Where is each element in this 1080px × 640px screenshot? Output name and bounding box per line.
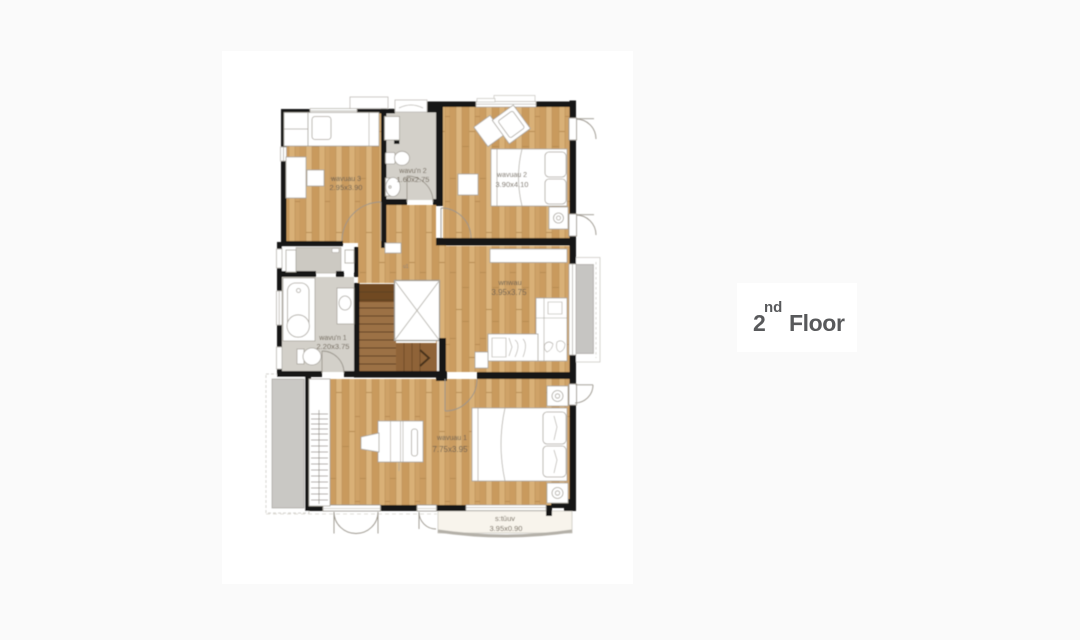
svg-text:wnwau: wnwau [497, 278, 521, 287]
svg-text:u1: u1 [403, 264, 409, 270]
svg-text:3.95x0.90: 3.95x0.90 [490, 524, 523, 533]
svg-text:Floor: Floor [789, 310, 845, 336]
svg-text:nd: nd [764, 299, 782, 316]
svg-text:2.20x3.75: 2.20x3.75 [317, 342, 350, 351]
svg-text:1.60x2.75: 1.60x2.75 [397, 175, 430, 184]
svg-text:s:tūuv: s:tūuv [495, 514, 515, 523]
svg-text:wavu'n 2: wavu'n 2 [398, 168, 427, 175]
svg-text:wavuau 2: wavuau 2 [496, 172, 527, 179]
svg-text:7.75x3.95: 7.75x3.95 [432, 445, 468, 454]
svg-text:3.90x4.10: 3.90x4.10 [496, 180, 529, 189]
svg-text:3.95x3.75: 3.95x3.75 [491, 288, 527, 297]
svg-text:2.95x3.90: 2.95x3.90 [330, 183, 363, 192]
svg-text:wavuau 3: wavuau 3 [330, 176, 361, 183]
svg-text:wavuau 1: wavuau 1 [436, 435, 467, 442]
svg-text:wavu'n 1: wavu'n 1 [318, 335, 347, 342]
